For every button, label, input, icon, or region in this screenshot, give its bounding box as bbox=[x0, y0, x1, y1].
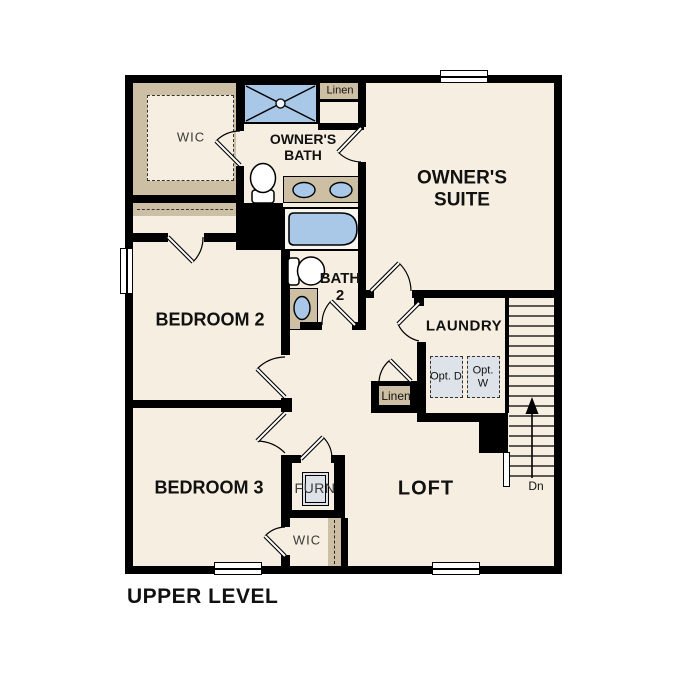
page-title: UPPER LEVEL bbox=[127, 585, 278, 609]
room-label-furnace: FURN bbox=[295, 481, 336, 497]
sink-icon bbox=[293, 183, 352, 198]
label-stairs-down: Dn bbox=[528, 480, 543, 494]
door bbox=[257, 413, 285, 453]
bathtub-icon bbox=[289, 213, 357, 245]
door bbox=[379, 360, 411, 381]
door bbox=[168, 237, 203, 262]
door bbox=[216, 131, 240, 165]
room-label-bedroom2: BEDROOM 2 bbox=[155, 310, 264, 331]
room-label-wic-master: WIC bbox=[177, 131, 205, 146]
door bbox=[371, 263, 411, 291]
shower-icon bbox=[246, 86, 315, 121]
sink-icon bbox=[294, 297, 310, 320]
room-label-owners-suite: OWNER'S SUITE bbox=[405, 167, 520, 210]
door bbox=[398, 303, 419, 341]
room-label-bedroom3: BEDROOM 3 bbox=[154, 478, 263, 499]
room-label-owners-bath: OWNER'S BATH bbox=[259, 132, 347, 164]
room-label-wic-bedroom3: WIC bbox=[293, 534, 321, 549]
door bbox=[257, 357, 285, 397]
room-label-linen-hall: Linen bbox=[381, 390, 410, 404]
room-label-loft: LOFT bbox=[398, 478, 454, 501]
label-opt-washer: Opt. W bbox=[466, 364, 500, 389]
room-label-laundry: LAUNDRY bbox=[426, 317, 502, 334]
floor-plan: WIC OWNER'S BATH Linen OWNER'S SUITE BED… bbox=[0, 0, 687, 687]
door bbox=[265, 527, 285, 556]
door bbox=[301, 437, 332, 459]
room-label-linen-top: Linen bbox=[327, 85, 354, 98]
door bbox=[322, 301, 355, 325]
room-label-bath2: BATH 2 bbox=[314, 270, 366, 304]
plan-symbols bbox=[0, 0, 687, 687]
toilet-icon bbox=[251, 164, 276, 204]
label-opt-dryer: Opt. D bbox=[429, 371, 463, 384]
